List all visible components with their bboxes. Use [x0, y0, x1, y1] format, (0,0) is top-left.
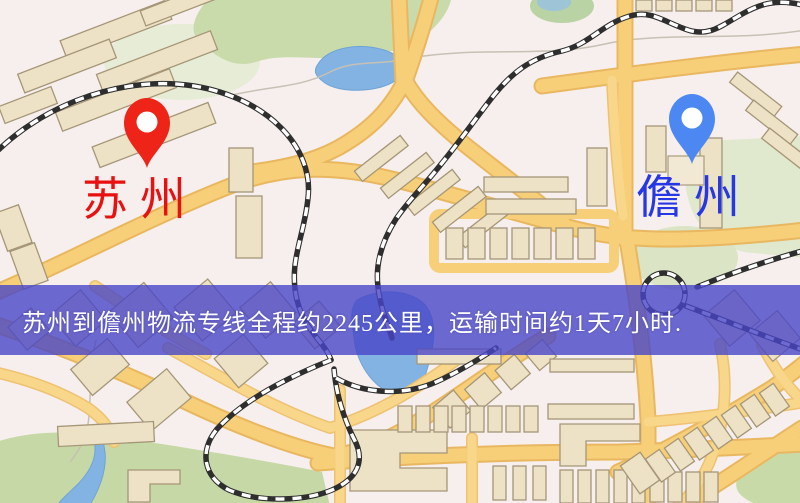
origin-pin-icon [122, 96, 172, 172]
destination-city-label: 儋州 [636, 175, 752, 221]
route-info-banner: 苏州到儋州物流专线全程约2245公里，运输时间约1天7小时. [0, 285, 800, 355]
map-container: 苏州到儋州物流专线全程约2245公里，运输时间约1天7小时. 苏州 儋州 [0, 0, 800, 503]
destination-pin-icon [667, 92, 717, 168]
origin-city-label: 苏州 [82, 177, 198, 223]
route-info-text: 苏州到儋州物流专线全程约2245公里，运输时间约1天7小时. [22, 303, 682, 338]
map-image [0, 0, 800, 503]
